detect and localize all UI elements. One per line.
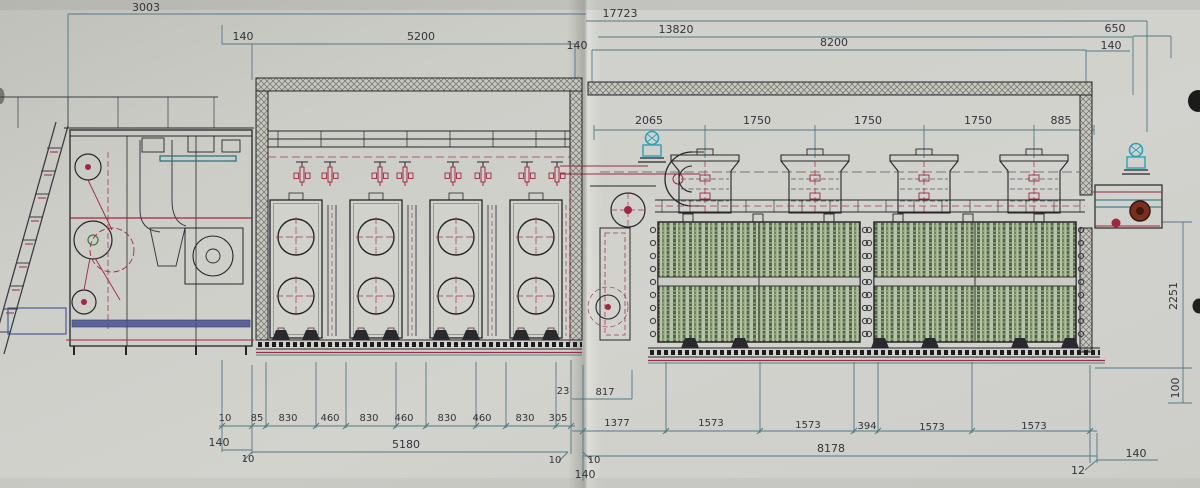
photo-bottom-vignette <box>0 478 1200 488</box>
dim-8178: 8178 <box>817 442 845 455</box>
dim-140-mid: 140 <box>567 39 588 52</box>
oven-chamber-1 <box>270 193 322 338</box>
dim-bl-0: 10 <box>219 413 232 424</box>
dim-140-right: 140 <box>1101 39 1122 52</box>
dim-885: 885 <box>1051 114 1072 127</box>
dim-bm-3: 394 <box>857 421 876 432</box>
dim-140-bl: 140 <box>209 436 230 449</box>
dim-2065: 2065 <box>635 114 663 127</box>
dim-bl-1: 85 <box>251 413 264 424</box>
dim-bm-5: 1573 <box>1021 421 1046 432</box>
dim-bm-4: 1573 <box>919 422 944 433</box>
dim-23: 23 <box>557 386 570 397</box>
dim-140-left: 140 <box>233 30 254 43</box>
dim-10-c: 10 <box>549 455 562 466</box>
dim-1750-a: 1750 <box>743 114 771 127</box>
dim-bl-6: 830 <box>437 413 456 424</box>
dim-5200: 5200 <box>407 30 435 43</box>
mesh-rack-block-1 <box>658 222 860 342</box>
dim-5180: 5180 <box>392 438 420 451</box>
dim-bl-7: 460 <box>472 413 491 424</box>
dim-817: 817 <box>595 387 614 398</box>
dim-1750-c: 1750 <box>964 114 992 127</box>
dim-bm-0: 1377 <box>604 418 629 429</box>
dim-bm-2: 1573 <box>795 420 820 431</box>
dim-bl-3: 460 <box>320 413 339 424</box>
oven-chamber-3 <box>430 193 482 338</box>
right-oven-right-wall-upper <box>1080 95 1092 195</box>
belt-band <box>72 320 250 327</box>
dim-bm-1: 1573 <box>698 418 723 429</box>
oven-chamber-4 <box>510 193 562 338</box>
dim-17723: 17723 <box>603 7 638 20</box>
right-oven-roof <box>588 82 1092 95</box>
dim-10-d: 10 <box>588 455 601 466</box>
photographed-cad-drawing: 3003 140 5200 140 17723 13820 8200 650 1… <box>0 0 1200 488</box>
left-oven-right-wall <box>570 91 582 340</box>
dim-13820: 13820 <box>659 23 694 36</box>
dim-bl-5: 460 <box>394 413 413 424</box>
left-oven-roof <box>256 78 582 91</box>
dim-8200: 8200 <box>820 36 848 49</box>
dim-10-a: 10 <box>242 454 255 465</box>
dim-bl-2: 830 <box>278 413 297 424</box>
left-oven-left-wall <box>256 91 268 340</box>
dim-2251: 2251 <box>1167 282 1180 310</box>
dim-12: 12 <box>1071 464 1085 477</box>
dim-bl-9: 305 <box>548 413 567 424</box>
dim-1750-b: 1750 <box>854 114 882 127</box>
photo-top-vignette <box>0 0 1200 10</box>
dim-140-fold: 140 <box>575 468 596 481</box>
right-oven-right-wall-lower <box>1080 228 1092 352</box>
oven-chamber-2 <box>350 193 402 338</box>
dim-140-bottom-right: 140 <box>1126 447 1147 460</box>
drawing-canvas: 3003 140 5200 140 17723 13820 8200 650 1… <box>0 0 1200 488</box>
dim-100: 100 <box>1169 378 1182 399</box>
dim-3003: 3003 <box>132 1 160 14</box>
dim-650: 650 <box>1105 22 1126 35</box>
dim-bl-8: 830 <box>515 413 534 424</box>
dim-bl-4: 830 <box>359 413 378 424</box>
mesh-rack-block-2 <box>874 222 1076 342</box>
